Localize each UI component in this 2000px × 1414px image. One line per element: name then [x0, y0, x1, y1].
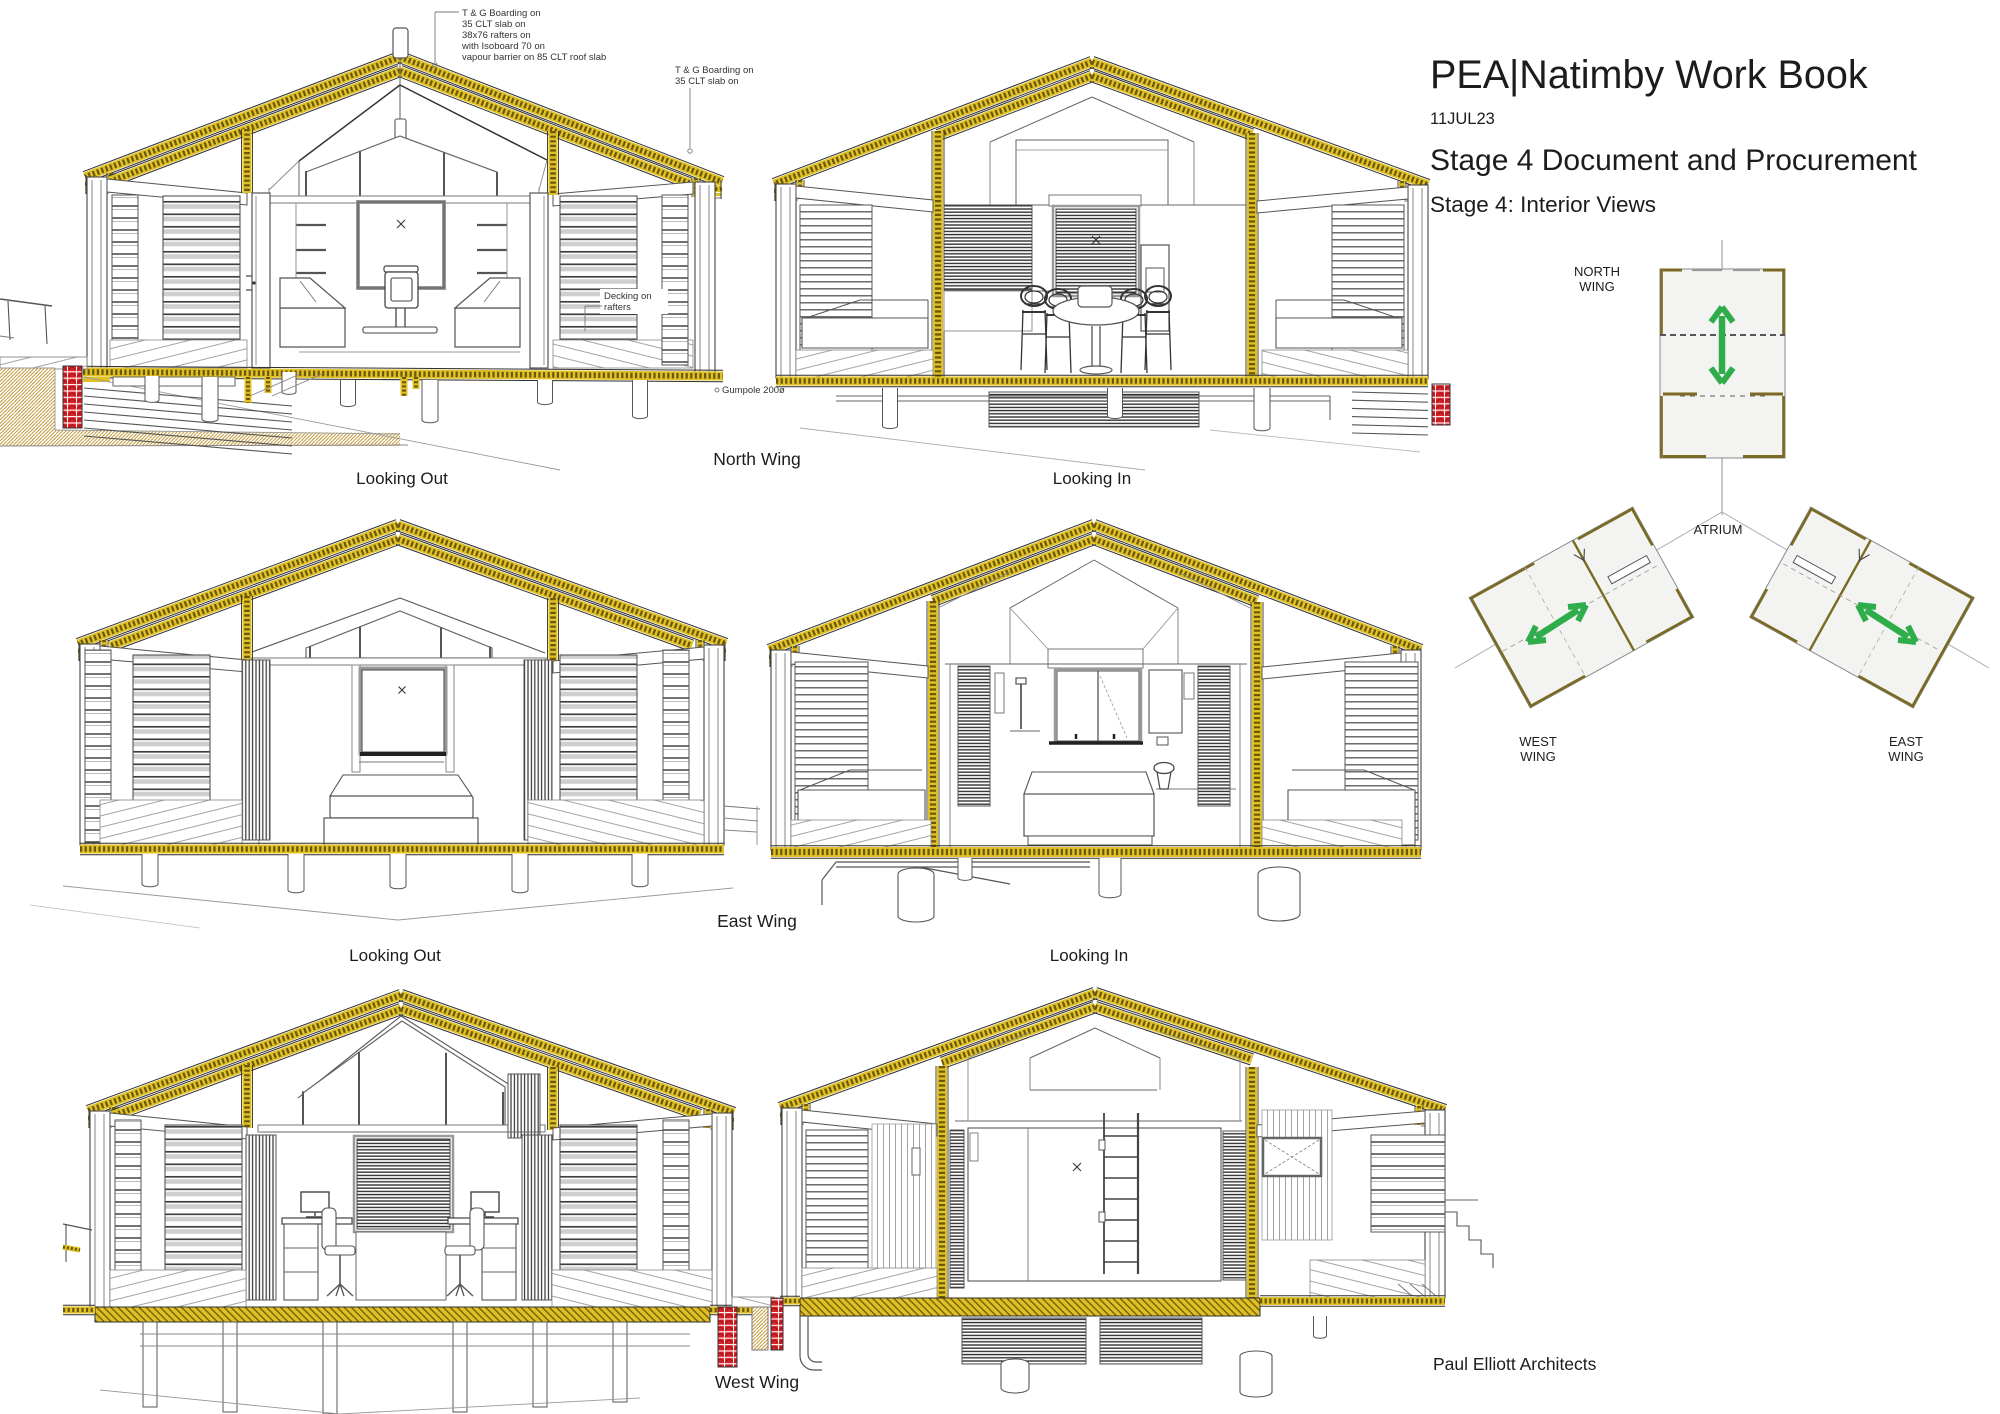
svg-text:Stage 4: Interior Views: Stage 4: Interior Views [1430, 192, 1656, 217]
svg-text:WEST: WEST [1519, 734, 1557, 749]
svg-text:Paul Elliott Architects: Paul Elliott Architects [1433, 1354, 1597, 1374]
svg-text:WING: WING [1579, 279, 1614, 294]
svg-text:T & G Boarding on: T & G Boarding on [462, 8, 541, 19]
svg-text:WING: WING [1888, 749, 1923, 764]
svg-text:ATRIUM: ATRIUM [1694, 522, 1743, 537]
svg-text:Looking In: Looking In [1053, 469, 1131, 488]
svg-text:38x76 rafters on: 38x76 rafters on [462, 30, 531, 41]
svg-text:North Wing: North Wing [713, 449, 801, 469]
svg-text:vapour barrier on 85 CLT roof: vapour barrier on 85 CLT roof slab [462, 52, 606, 63]
svg-text:Looking Out: Looking Out [349, 946, 441, 965]
svg-text:EAST: EAST [1889, 734, 1923, 749]
svg-text:Stage 4 Document and Procureme: Stage 4 Document and Procurement [1430, 144, 1918, 177]
svg-text:11JUL23: 11JUL23 [1430, 110, 1495, 128]
svg-text:WING: WING [1520, 749, 1555, 764]
svg-text:rafters: rafters [604, 302, 631, 313]
svg-text:East Wing: East Wing [717, 911, 797, 931]
svg-text:with Isoboard 70 on: with Isoboard 70 on [461, 41, 545, 52]
svg-text:Looking Out: Looking Out [356, 469, 448, 488]
svg-text:West Wing: West Wing [715, 1372, 799, 1392]
svg-text:NORTH: NORTH [1574, 264, 1620, 279]
svg-text:T & G Boarding on: T & G Boarding on [675, 65, 754, 76]
svg-text:35 CLT slab on: 35 CLT slab on [462, 19, 526, 30]
svg-text:Decking on: Decking on [604, 291, 652, 302]
svg-text:Looking In: Looking In [1050, 946, 1128, 965]
svg-text:Gumpole 200ø: Gumpole 200ø [722, 385, 785, 396]
svg-text:35 CLT slab on: 35 CLT slab on [675, 76, 739, 87]
svg-text:PEA|Natimby Work Book: PEA|Natimby Work Book [1430, 53, 1868, 97]
